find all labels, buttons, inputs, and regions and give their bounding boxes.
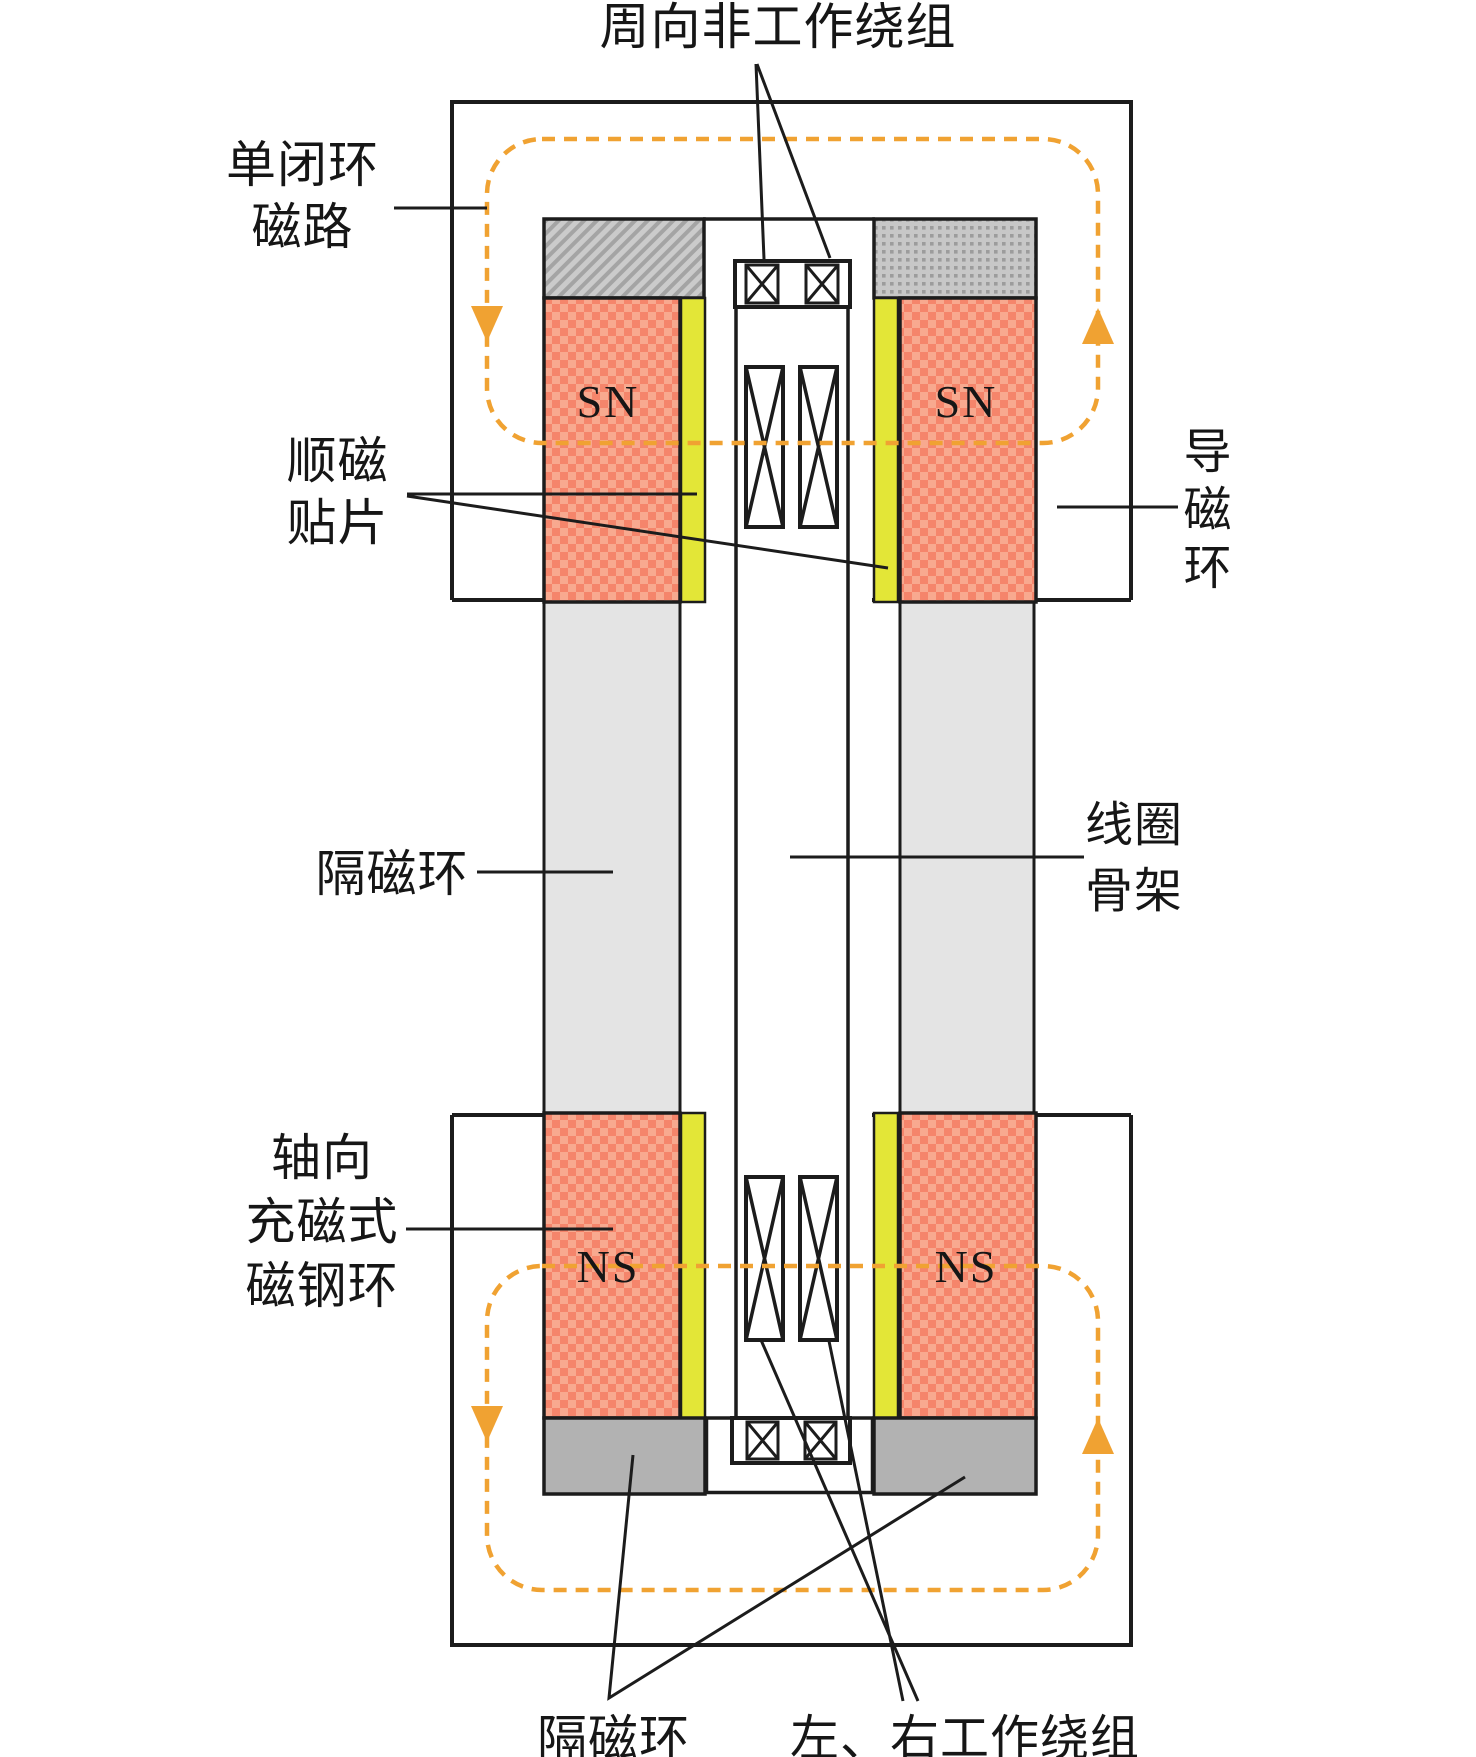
diagram-artwork (0, 0, 1476, 1757)
gray-block-bottom-left (544, 1418, 705, 1494)
magnet-polarity-bottom-left: NS (538, 1242, 678, 1292)
flux-arrow-bottom-right-up (1082, 1418, 1114, 1454)
label-paramagnetic-patch: 顺磁 贴片 (240, 430, 435, 554)
label-coil-bobbin: 线圈 骨架 (1083, 793, 1185, 925)
hatched-block-top-left (544, 219, 704, 298)
working-coil-upper-left (746, 367, 783, 527)
label-flux-conducting-ring: 导 磁 环 (1180, 424, 1236, 598)
nonworking-winding-bottom (732, 1418, 850, 1463)
label-single-closed-loop-magnetic-circuit: 单闭环 磁路 (205, 134, 400, 258)
magnet-top-left (544, 298, 680, 602)
flux-arrow-top-right-up (1082, 308, 1114, 344)
working-coil-lower-left (746, 1177, 783, 1340)
label-left-right-working-windings: 左、右工作绕组 (790, 1708, 1140, 1757)
flux-arrow-top-left-down (471, 306, 503, 342)
working-coil-lower-right (800, 1177, 837, 1340)
label-axially-magnetized-magnet-ring: 轴向 充磁式 磁钢环 (222, 1126, 422, 1318)
nonworking-winding-top (735, 261, 850, 307)
magnetic-actuator-diagram: 周向非工作绕组 单闭环 磁路 顺磁 贴片 导 磁 环 隔磁环 线圈 骨架 轴向 … (0, 0, 1476, 1757)
working-coil-upper-right (800, 367, 837, 527)
magnet-top-right (900, 298, 1036, 602)
dotted-block-top-right (874, 219, 1036, 298)
leader-circumferential-winding (756, 64, 830, 259)
label-circumferential-nonworking-winding: 周向非工作绕组 (592, 0, 964, 58)
flux-arrow-bottom-left-down (471, 1406, 503, 1442)
magnet-polarity-top-left: SN (538, 377, 678, 427)
label-isolation-ring-middle: 隔磁环 (312, 843, 472, 905)
paramagnetic-strip-top-left (681, 298, 705, 602)
magnet-polarity-bottom-right: NS (896, 1242, 1036, 1292)
isolation-bar-left (544, 602, 680, 1113)
label-isolation-ring-bottom: 隔磁环 (531, 1708, 696, 1757)
paramagnetic-strip-top-right (874, 298, 898, 602)
magnet-polarity-top-right: SN (896, 377, 1036, 427)
